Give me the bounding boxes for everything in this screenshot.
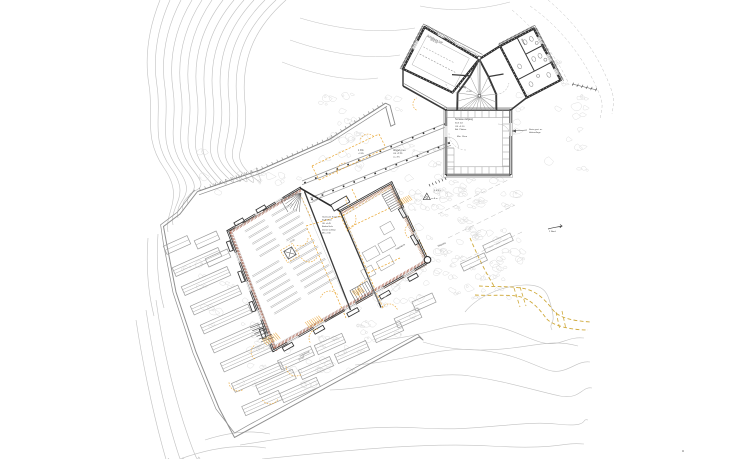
svg-text:OK +0.45: OK +0.45 [322,223,332,225]
svg-text:2. Obg: 2. Obg [459,87,467,89]
svg-text:2 Nord: 2 Nord [549,230,556,233]
svg-text:Gastraum Sommer: Gastraum Sommer [322,216,340,219]
svg-text:Holzauflage: Holzauflage [529,132,541,134]
svg-text:Boden Holz: Boden Holz [322,226,333,228]
svg-text:ca 8 m: ca 8 m [431,198,438,200]
svg-text:1 OG: 1 OG [358,150,364,152]
svg-text:Terrasse Aufgang: Terrasse Aufgang [455,118,474,121]
svg-text:+5.60: +5.60 [466,91,472,93]
svg-text:30.5 m2: 30.5 m2 [455,122,464,124]
svg-text:OK +2.25: OK +2.25 [393,153,403,155]
svg-text:Decke sichtbar: Decke sichtbar [322,228,336,231]
svg-text:Min. 2.30: Min. 2.30 [322,233,331,235]
svg-text:2 5 8 5: 2 5 8 5 [434,190,441,192]
svg-text:Stein gest. m.: Stein gest. m. [529,128,543,131]
svg-text:Bel. Platten: Bel. Platten [455,128,467,131]
svg-text:60 Plaetze: 60 Plaetze [322,219,333,222]
svg-text:ca. 4%: ca. 4% [393,156,400,158]
svg-text:OK +3.10: OK +3.10 [455,126,465,128]
svg-text:+2.85: +2.85 [358,153,364,155]
svg-text:Min. 10cm: Min. 10cm [457,136,467,138]
svg-text:Umgeb. neu: Umgeb. neu [393,150,406,152]
